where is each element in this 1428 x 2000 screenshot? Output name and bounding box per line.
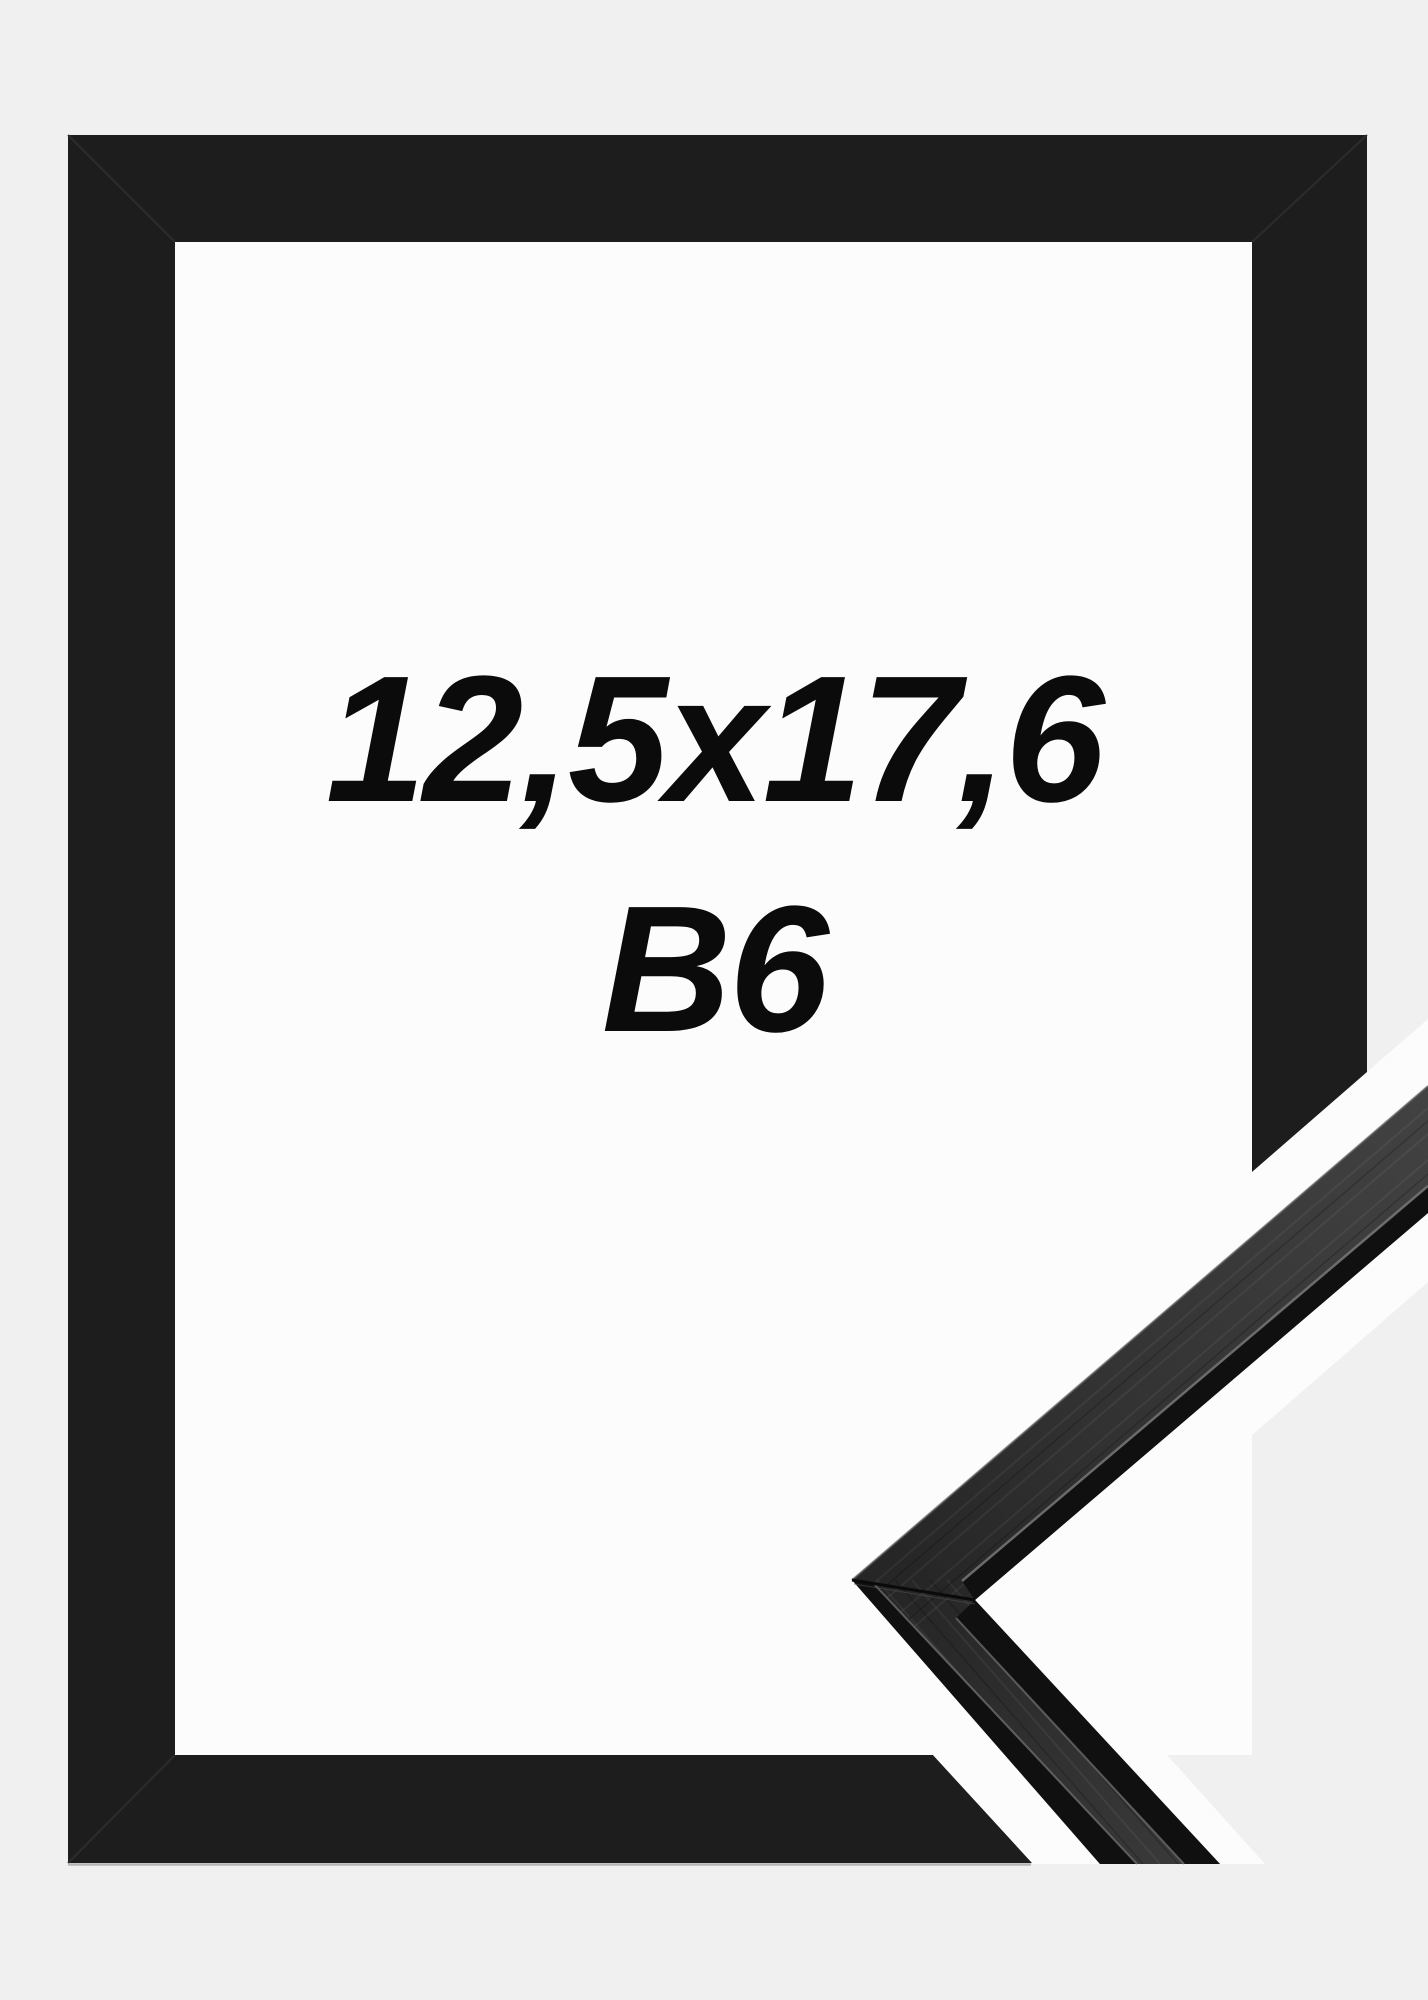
- format-label: B6: [0, 880, 1428, 1060]
- size-label: 12,5x17,6: [0, 650, 1428, 830]
- frame-product-image: 12,5x17,6 B6: [0, 0, 1428, 2000]
